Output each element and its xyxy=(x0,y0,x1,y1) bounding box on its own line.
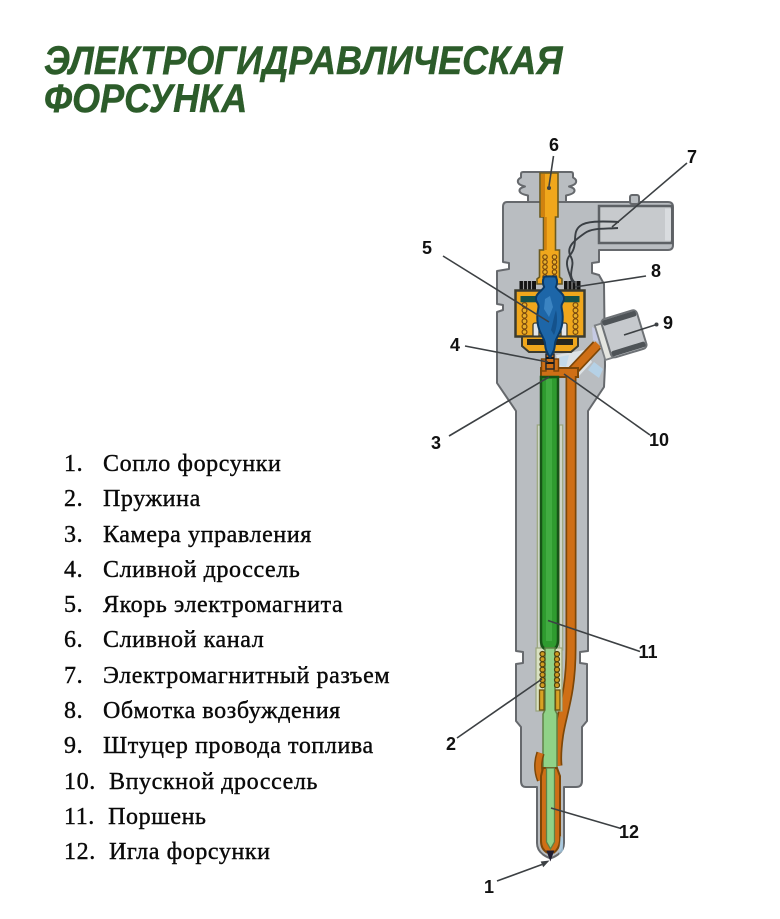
svg-text:7: 7 xyxy=(687,147,697,167)
svg-text:6: 6 xyxy=(549,135,559,155)
svg-text:9: 9 xyxy=(663,313,673,333)
svg-text:11: 11 xyxy=(638,642,657,662)
svg-text:5: 5 xyxy=(422,238,432,258)
svg-text:12: 12 xyxy=(619,822,639,842)
svg-text:3: 3 xyxy=(431,433,441,453)
svg-text:4: 4 xyxy=(450,335,460,355)
svg-text:10: 10 xyxy=(649,430,669,450)
svg-text:2: 2 xyxy=(446,734,456,754)
svg-text:8: 8 xyxy=(651,261,661,281)
svg-text:1: 1 xyxy=(484,877,494,897)
